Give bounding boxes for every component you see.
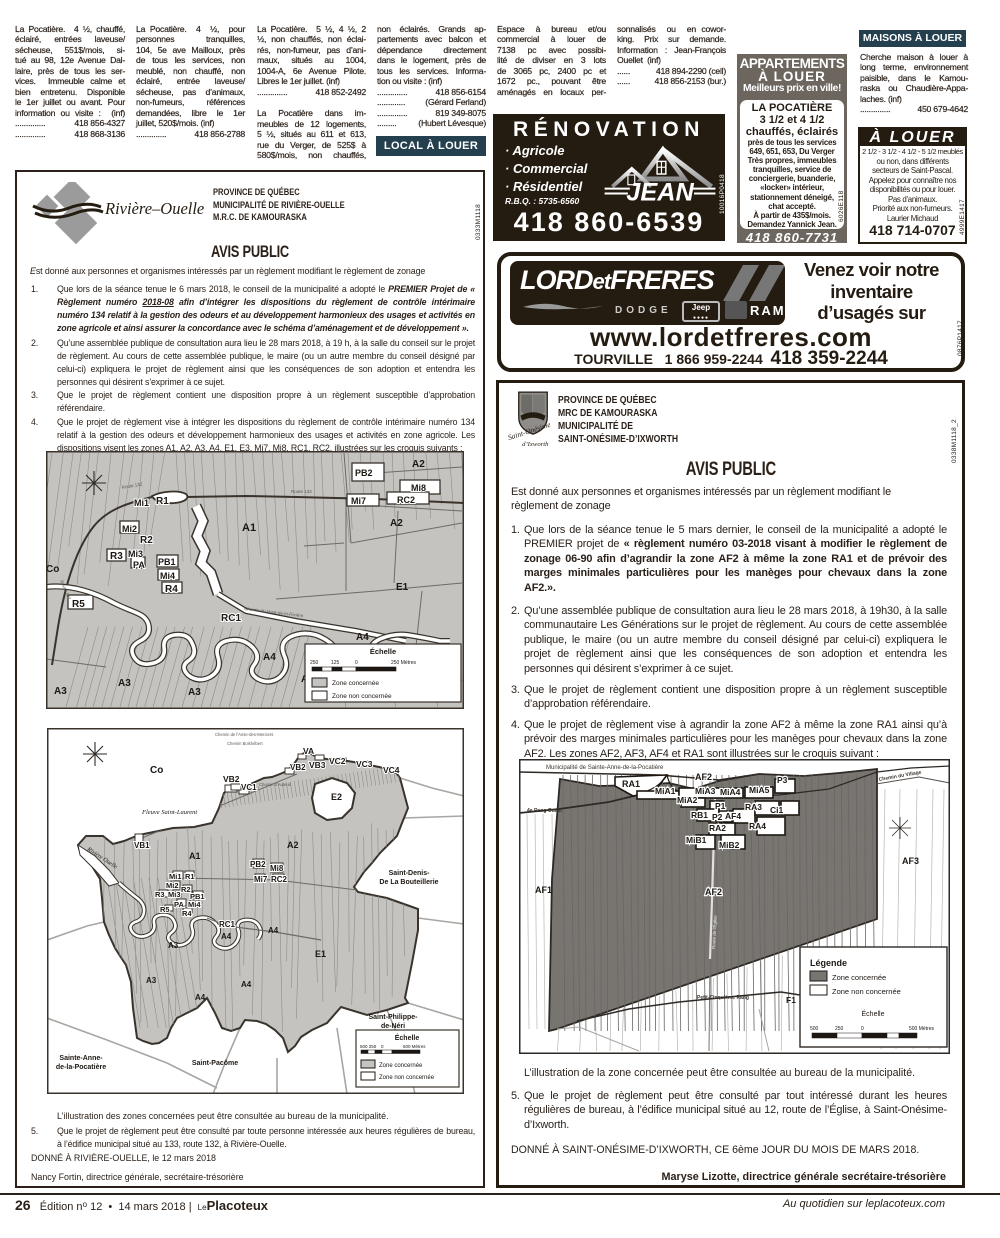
svg-text:A2: A2 xyxy=(287,840,299,850)
svg-text:Petit-Cinquième Rang: Petit-Cinquième Rang xyxy=(697,995,749,1001)
svg-text:R3: R3 xyxy=(110,551,123,562)
svg-text:MiA5: MiA5 xyxy=(749,785,770,795)
svg-text:A3: A3 xyxy=(188,687,201,698)
svg-text:VC3: VC3 xyxy=(356,759,373,769)
svg-text:Mi1: Mi1 xyxy=(134,498,149,508)
svg-text:Chemin de l'Anse-des-Merciers: Chemin de l'Anse-des-Merciers xyxy=(215,732,273,737)
svg-text:Mi3: Mi3 xyxy=(128,549,143,559)
svg-text:PB2: PB2 xyxy=(355,468,373,478)
svg-text:Zone non concernée: Zone non concernée xyxy=(832,987,901,996)
svg-text:AF4: AF4 xyxy=(725,811,741,821)
svg-text:A3: A3 xyxy=(146,976,157,985)
svg-text:de-Néri: de-Néri xyxy=(381,1023,405,1030)
svg-text:P1: P1 xyxy=(715,801,726,811)
svg-text:Zone concernée: Zone concernée xyxy=(379,1063,423,1069)
svg-text:Saint-Pacôme: Saint-Pacôme xyxy=(192,1060,238,1067)
svg-text:P2: P2 xyxy=(712,812,723,822)
svg-text:VC1: VC1 xyxy=(241,783,257,792)
svg-text:A2: A2 xyxy=(390,518,403,529)
svg-text:F1: F1 xyxy=(786,995,796,1005)
svg-text:R4: R4 xyxy=(182,909,192,918)
svg-text:VC4: VC4 xyxy=(383,765,400,775)
svg-text:250: 250 xyxy=(835,1026,844,1032)
svg-text:PA: PA xyxy=(133,560,145,570)
svg-text:d’Ixworth: d’Ixworth xyxy=(522,441,549,448)
svg-text:PB2: PB2 xyxy=(250,860,266,869)
svg-text:Saint-Denis-: Saint-Denis- xyxy=(389,870,431,877)
svg-text:R5: R5 xyxy=(160,905,170,914)
svg-text:de-la-Pocatière: de-la-Pocatière xyxy=(56,1064,106,1071)
svg-text:AF3: AF3 xyxy=(902,856,919,866)
svg-text:E1: E1 xyxy=(315,949,326,959)
svg-text:JEAN: JEAN xyxy=(626,178,694,206)
svg-text:VB2: VB2 xyxy=(290,763,306,772)
svg-text:RC2: RC2 xyxy=(271,875,288,884)
svg-text:Fleuve Saint-Laurent: Fleuve Saint-Laurent xyxy=(141,809,197,816)
svg-text:A4: A4 xyxy=(195,993,206,1002)
svg-text:A4: A4 xyxy=(268,926,279,935)
svg-text:500 Mètres: 500 Mètres xyxy=(403,1044,426,1049)
svg-text:RC1: RC1 xyxy=(221,613,241,624)
svg-text:E2: E2 xyxy=(331,792,342,802)
svg-text:500 Mètres: 500 Mètres xyxy=(909,1026,935,1032)
svg-text:A4: A4 xyxy=(221,932,232,941)
svg-text:R3: R3 xyxy=(155,890,165,899)
svg-text:Échelle: Échelle xyxy=(370,647,396,656)
svg-text:Zone non concernée: Zone non concernée xyxy=(379,1075,435,1081)
svg-text:Mi7: Mi7 xyxy=(351,496,366,506)
svg-text:4e Rang Ouest: 4e Rang Ouest xyxy=(527,808,562,814)
svg-text:A3: A3 xyxy=(168,941,179,950)
svg-text:RC2: RC2 xyxy=(397,495,415,505)
svg-text:AF2: AF2 xyxy=(695,772,712,782)
svg-text:VA: VA xyxy=(303,746,314,756)
svg-text:125: 125 xyxy=(331,660,340,666)
svg-text:Municipalité de Sainte-Anne-de: Municipalité de Sainte-Anne-de-la-Pocati… xyxy=(546,765,664,771)
svg-text:R2: R2 xyxy=(140,535,153,546)
svg-text:Mi4: Mi4 xyxy=(160,571,175,581)
svg-text:250: 250 xyxy=(310,660,319,666)
svg-text:MiA4: MiA4 xyxy=(720,787,741,797)
svg-text:RC1: RC1 xyxy=(219,920,236,929)
svg-text:Mi2: Mi2 xyxy=(166,881,179,890)
svg-text:R5: R5 xyxy=(72,599,85,610)
svg-text:A1: A1 xyxy=(242,522,256,534)
svg-text:Mi2: Mi2 xyxy=(122,524,137,534)
svg-text:VB2: VB2 xyxy=(223,774,240,784)
svg-text:Co: Co xyxy=(150,765,163,776)
svg-text:Zone non concernée: Zone non concernée xyxy=(332,693,392,700)
svg-text:Zone concernée: Zone concernée xyxy=(332,680,379,687)
svg-text:Mi4: Mi4 xyxy=(188,900,201,909)
svg-text:RA1: RA1 xyxy=(622,779,640,789)
svg-text:RA3: RA3 xyxy=(745,802,762,812)
svg-text:Légende: Légende xyxy=(810,958,847,968)
svg-text:Chemin Boishébert: Chemin Boishébert xyxy=(227,741,263,746)
svg-text:E1: E1 xyxy=(396,582,409,593)
svg-text:A4: A4 xyxy=(263,652,276,663)
svg-text:De La Bouteillerie: De La Bouteillerie xyxy=(379,879,438,886)
svg-text:500: 500 xyxy=(810,1026,819,1032)
svg-text:Co: Co xyxy=(46,564,59,575)
svg-text:A3: A3 xyxy=(118,678,131,689)
svg-text:P3: P3 xyxy=(777,775,788,785)
svg-text:Mi3: Mi3 xyxy=(168,890,181,899)
svg-text:A4: A4 xyxy=(241,980,252,989)
svg-text:PB1: PB1 xyxy=(158,557,176,567)
svg-text:Échelle: Échelle xyxy=(395,1033,420,1042)
svg-text:MiA1: MiA1 xyxy=(655,786,676,796)
svg-text:Mi8: Mi8 xyxy=(270,864,284,873)
svg-text:VB1: VB1 xyxy=(134,841,150,850)
svg-text:R1: R1 xyxy=(185,872,195,881)
svg-text:A2: A2 xyxy=(412,459,425,470)
svg-text:VB3: VB3 xyxy=(309,760,326,770)
svg-text:A1: A1 xyxy=(189,851,201,861)
svg-text:A4: A4 xyxy=(356,632,369,643)
svg-text:RA2: RA2 xyxy=(709,823,726,833)
svg-text:500 250: 500 250 xyxy=(360,1044,377,1049)
svg-text:Route 132: Route 132 xyxy=(291,489,312,494)
svg-text:0: 0 xyxy=(355,660,358,666)
svg-text:R4: R4 xyxy=(165,584,178,595)
svg-text:250 Mètres: 250 Mètres xyxy=(391,660,417,666)
svg-text:Saint-Philippe-: Saint-Philippe- xyxy=(369,1014,419,1021)
svg-text:PA: PA xyxy=(174,900,184,909)
svg-text:A3: A3 xyxy=(54,686,67,697)
svg-text:MiA2: MiA2 xyxy=(677,795,698,805)
svg-text:Échelle: Échelle xyxy=(862,1009,885,1018)
svg-text:Mi1: Mi1 xyxy=(169,872,182,881)
svg-text:Chemin d'Auteuil: Chemin d'Auteuil xyxy=(259,782,291,787)
svg-text:RA4: RA4 xyxy=(749,821,766,831)
svg-text:R1: R1 xyxy=(156,496,169,507)
svg-text:RB1: RB1 xyxy=(691,810,708,820)
svg-text:AF1: AF1 xyxy=(535,885,552,895)
svg-text:MiB1: MiB1 xyxy=(686,835,707,845)
svg-text:Mi7: Mi7 xyxy=(254,875,268,884)
svg-text:Zone concernée: Zone concernée xyxy=(832,973,886,982)
svg-text:AF2: AF2 xyxy=(705,887,722,897)
svg-text:Sainte-Anne-: Sainte-Anne- xyxy=(59,1055,103,1062)
svg-text:MiA3: MiA3 xyxy=(695,786,716,796)
svg-text:Mi8: Mi8 xyxy=(411,483,426,493)
svg-text:Ci1: Ci1 xyxy=(770,805,784,815)
svg-text:MiB2: MiB2 xyxy=(719,840,740,850)
svg-text:VC2: VC2 xyxy=(329,756,346,766)
svg-text:0: 0 xyxy=(861,1026,864,1032)
